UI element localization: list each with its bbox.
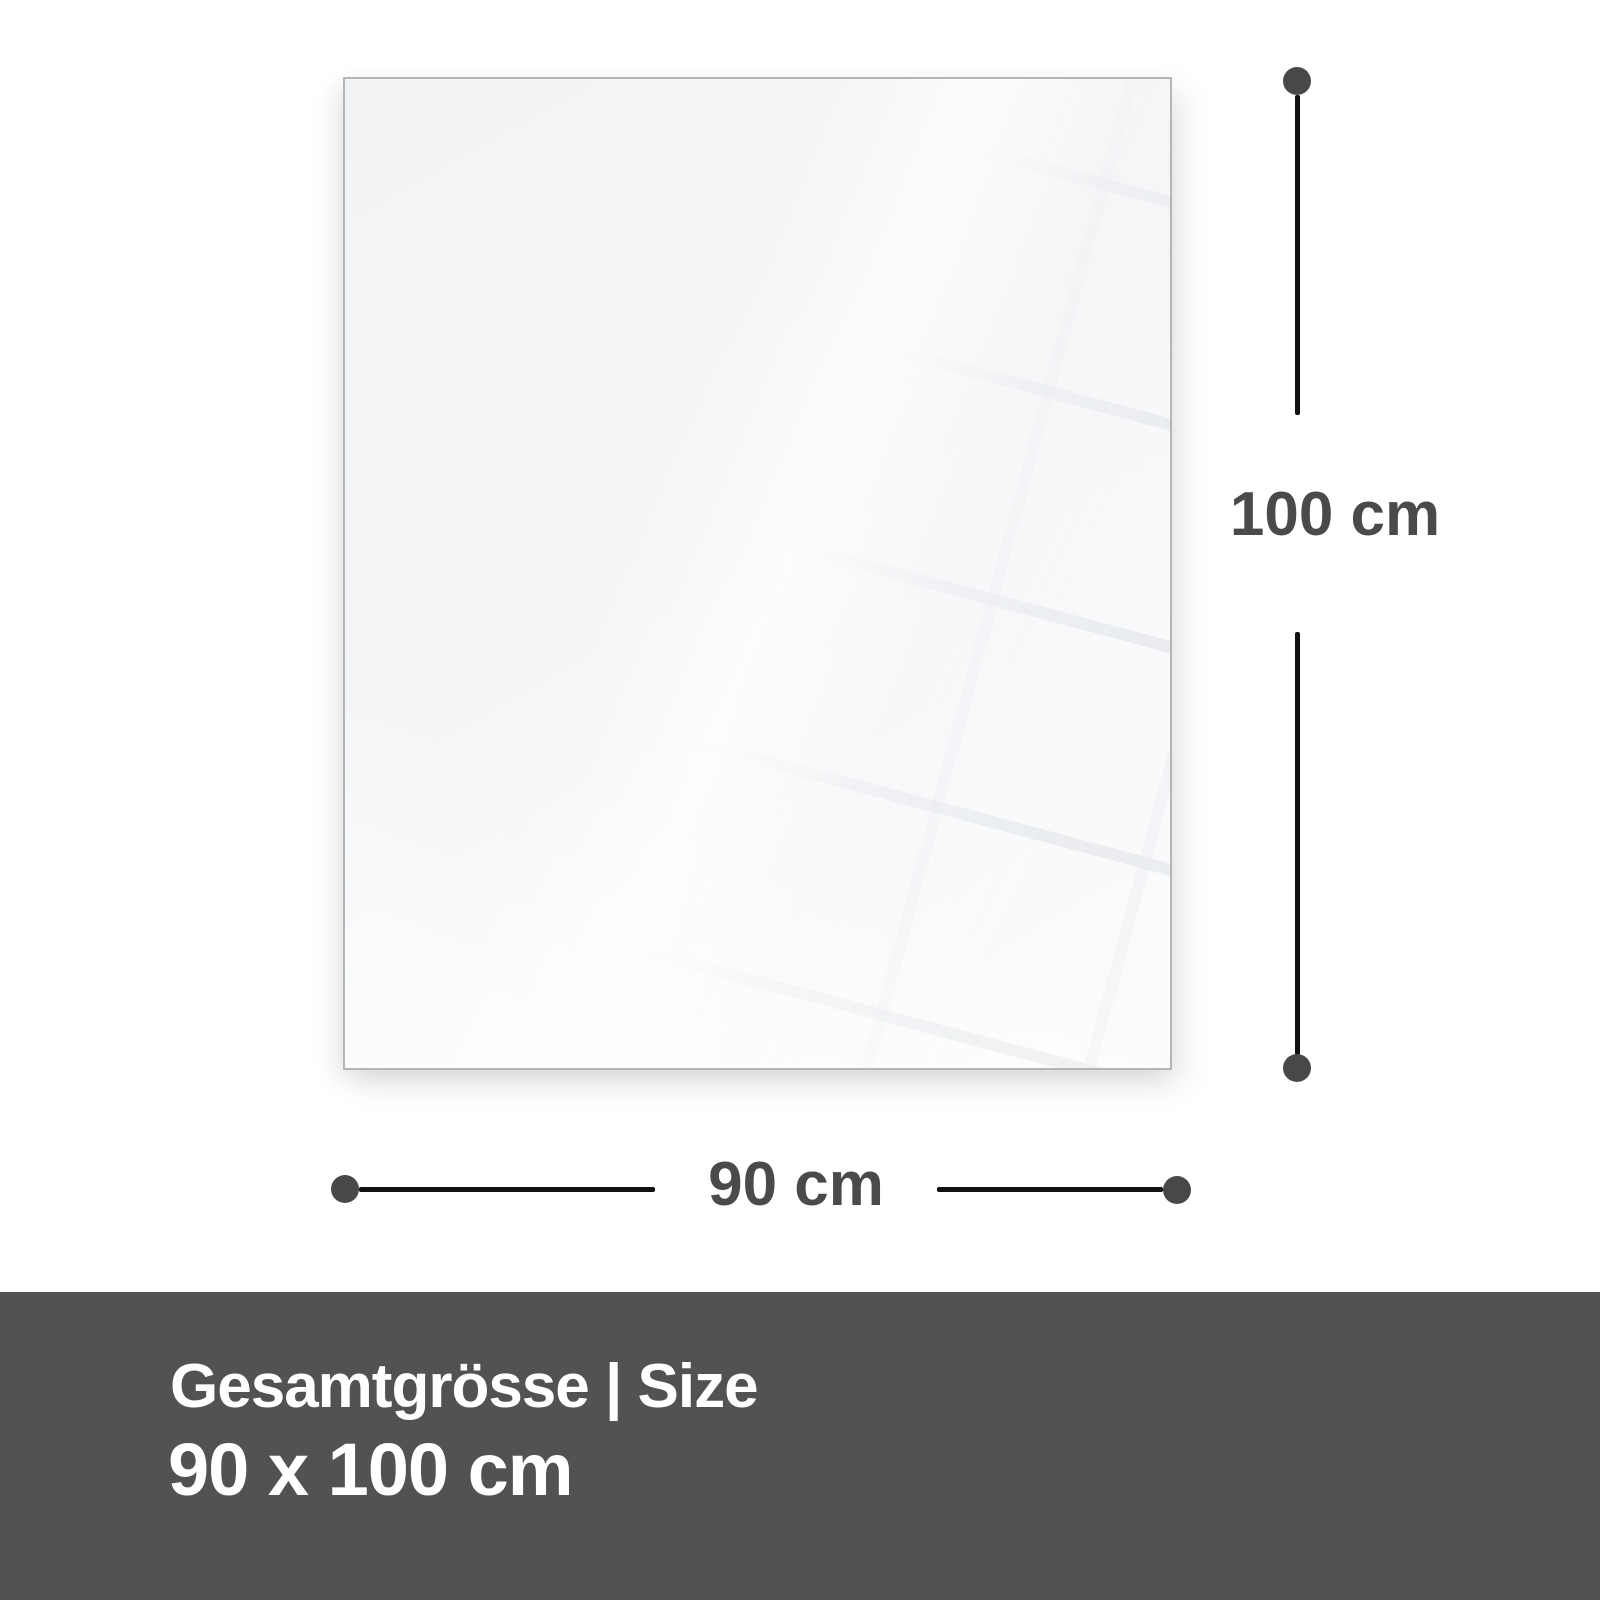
banner-title: Gesamtgrösse | Size	[170, 1352, 758, 1422]
size-diagram: 100 cm 90 cm Gesamtgrösse | Size 90 x 10…	[0, 0, 1600, 1600]
dimension-endpoint-dot-bottom	[1283, 1054, 1311, 1082]
product-panel	[343, 77, 1172, 1070]
height-dimension-label: 100 cm	[1215, 482, 1455, 548]
banner-size-value: 90 x 100 cm	[168, 1430, 573, 1510]
vertical-dimension-line-lower	[1295, 632, 1300, 1055]
vertical-dimension-line-upper	[1295, 95, 1300, 415]
dimension-endpoint-dot-left	[331, 1175, 359, 1203]
glass-sheen	[345, 79, 1170, 1068]
horizontal-dimension-line-right	[937, 1187, 1163, 1192]
size-info-banner: Gesamtgrösse | Size 90 x 100 cm	[0, 1292, 1600, 1600]
dimension-endpoint-dot-top	[1283, 67, 1311, 95]
dimension-endpoint-dot-right	[1163, 1176, 1191, 1204]
width-dimension-label: 90 cm	[686, 1152, 906, 1218]
horizontal-dimension-line-left	[359, 1187, 655, 1192]
